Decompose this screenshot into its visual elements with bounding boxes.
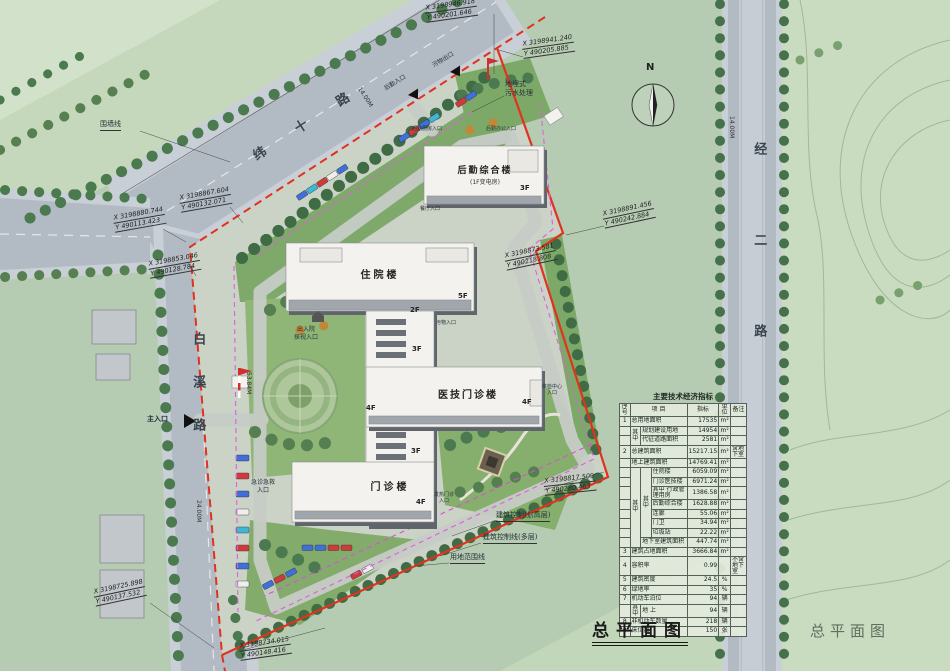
table-row: 地上建筑面积14769.41m² (620, 458, 747, 468)
emergency-entrance-label: 急诊急救 入口 (251, 479, 275, 494)
road-name-baixi: 白溪路 (189, 332, 205, 461)
table-header-row: 序号 项 目 指标 单位 备注 (620, 404, 747, 417)
sewage-treatment-label: 地埋式 污水处理 (505, 80, 533, 98)
table-row: 2总建筑面积15217.15m²含地下室 (620, 445, 747, 458)
main-entrance-label: 主入口 (147, 415, 168, 424)
floor-label: 2F (410, 306, 420, 314)
road-width-jinger: 14.00M (728, 116, 736, 138)
site-red-line-label: 用地范围线 (450, 553, 485, 564)
logistics-kitchen-entrance-label: 后勤厨房入口 (412, 126, 442, 132)
site-west-dimension: 53.84M (245, 372, 253, 394)
drawing-title: 总平面图 (592, 616, 688, 646)
drawing-title-text: 总平面图 (592, 616, 688, 643)
north-compass (632, 84, 674, 126)
wall-line-label: 围墙线 (100, 120, 121, 131)
table-row: 其中其中住院楼6059.09m² (620, 468, 747, 478)
table-row: 其中规划建设用地14954m² (620, 426, 747, 436)
north-label: N (646, 62, 654, 73)
col-unit: 单位 (719, 404, 731, 417)
building-name-yiji: 医技门诊楼 (408, 390, 528, 403)
control-line-multi-label: 建筑控制线(多层) (483, 533, 537, 544)
building-name-menzhen: 门诊楼 (340, 482, 440, 495)
waste-in-entrance-label: 污物入口 (436, 320, 456, 326)
watermark-title: 总平面图 (810, 620, 890, 641)
floor-label: 3F (411, 447, 421, 455)
tech-economic-table: 主要技术经济指标 序号 项 目 指标 单位 备注 1总用地面积17535m² 其… (619, 391, 747, 637)
floor-label: 3F (520, 184, 530, 192)
building-name-houqin: 后勤综合楼 (432, 166, 538, 177)
floor-label: 3F (412, 345, 422, 353)
col-value: 指标 (687, 404, 719, 417)
checkup-center-entrance-label: 体检中心 入口 (542, 384, 562, 397)
canteen-entrance-label: 餐厅入口 (420, 206, 440, 212)
col-no: 序号 (620, 404, 631, 417)
table-row: 6绿地率35% (620, 585, 747, 595)
table-row: 1总用地面积17535m² (620, 417, 747, 427)
road-weishi-west-stub (0, 188, 150, 280)
floor-label: 4F (366, 404, 376, 412)
logistics-office-entrance-label: 后勤办公入口 (486, 126, 516, 132)
building-name-zhuyuan: 住院楼 (330, 270, 430, 283)
table-row: 4容积率0.99不含地下室 (620, 557, 747, 576)
floor-label: 5F (458, 292, 468, 300)
table-row: 3建筑占地面积3666.84m² (620, 547, 747, 557)
table-row: 7机动车泊位94辆 (620, 595, 747, 605)
table-row: 5建筑密度24.5% (620, 576, 747, 586)
road-width-baixi: 24.00M (195, 500, 203, 522)
floor-label: 4F (522, 398, 532, 406)
admission-entrance-label: 出入院 探视入口 (294, 326, 318, 341)
site-plan-canvas (0, 0, 950, 671)
central-plaza (263, 359, 337, 433)
control-line-high-label: 建筑控制线(高层) (496, 511, 550, 522)
col-note: 备注 (731, 404, 747, 417)
road-name-jinger: 经二路 (750, 142, 766, 415)
col-item: 项 目 (630, 404, 687, 417)
table-title: 主要技术经济指标 (619, 391, 747, 402)
floor-label: 4F (416, 498, 426, 506)
